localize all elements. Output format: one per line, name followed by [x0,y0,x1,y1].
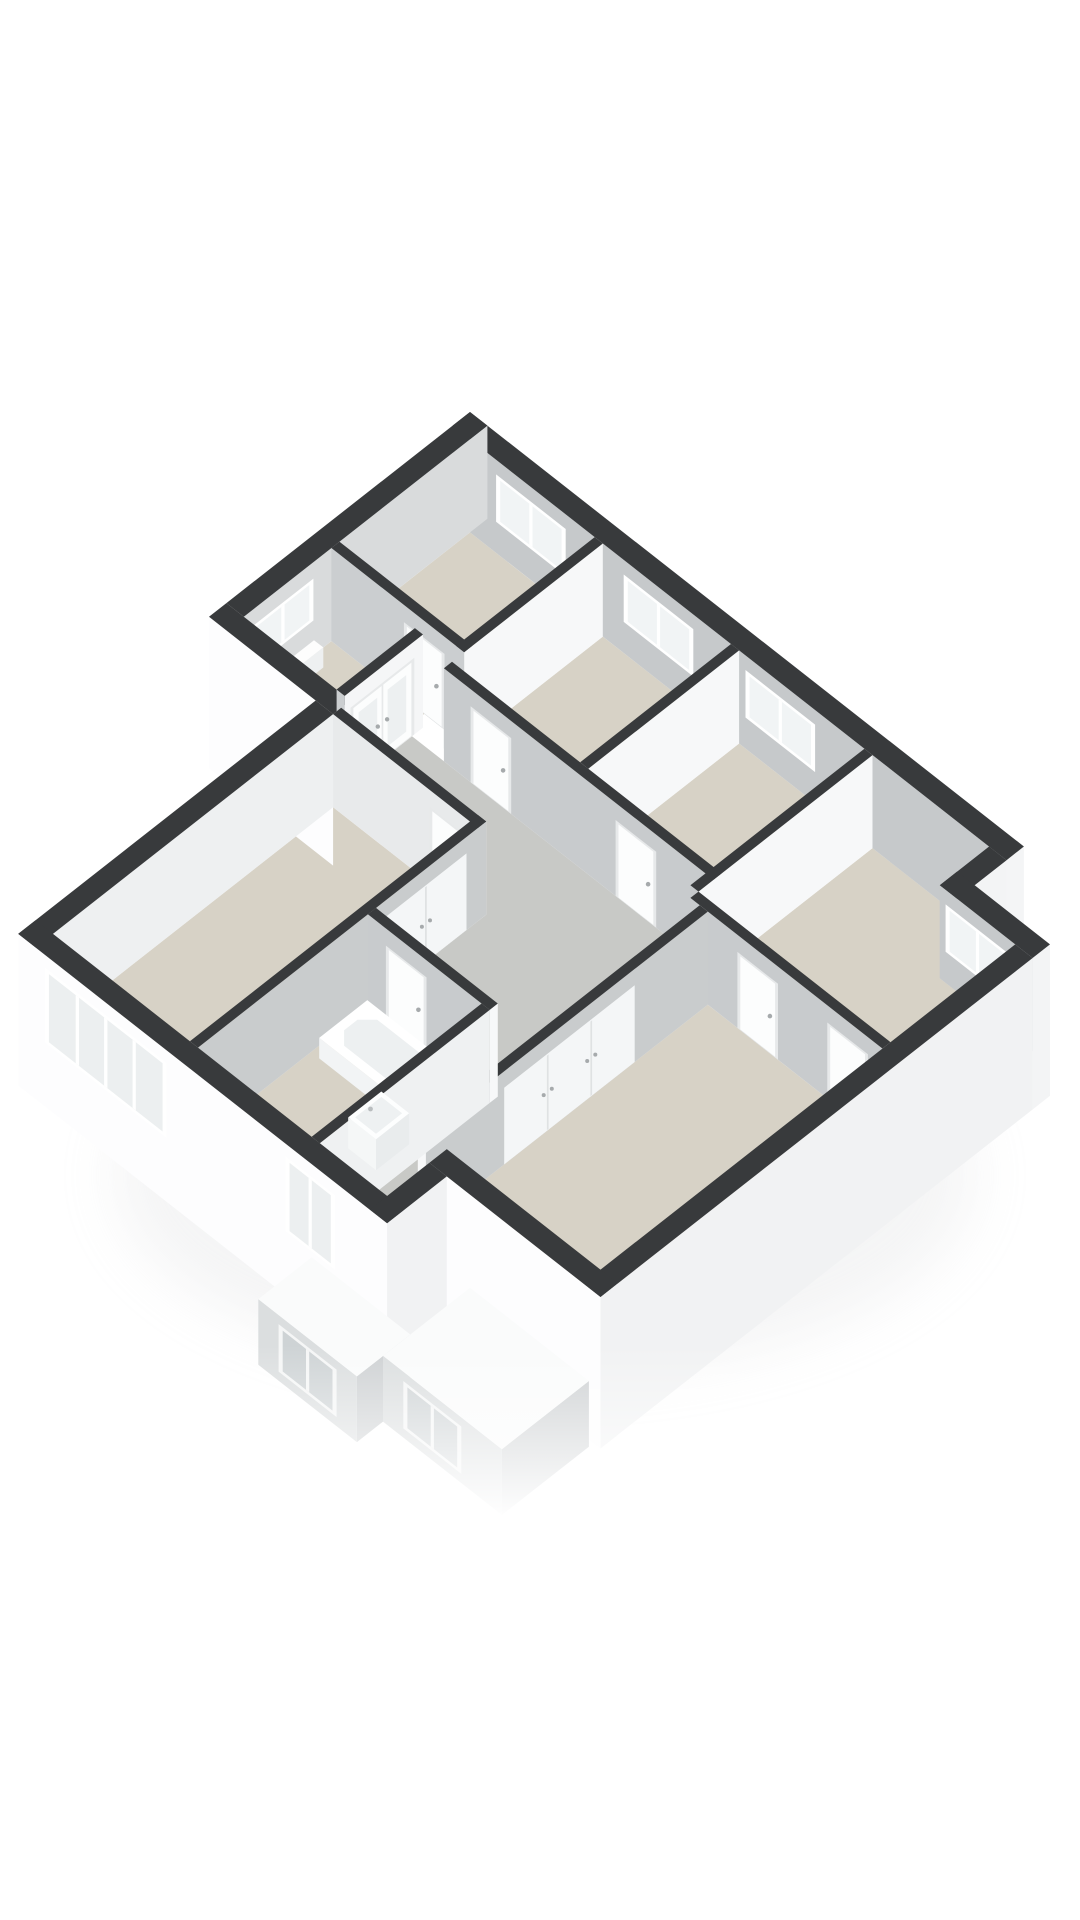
wall-face-se [1033,944,1050,1109]
ground-fade-solid [0,1520,1080,1920]
washbasin-tap [368,1107,373,1112]
wall-face-se [490,1004,498,1103]
closet-handle [420,925,424,929]
closet-handle [428,918,432,922]
window-mullion [529,504,532,547]
window-mullion [779,699,782,743]
closet-handle [542,1093,546,1097]
window-mullion [309,1178,312,1249]
window-mullion [76,995,79,1066]
door-handle [416,1008,421,1013]
scene-root [0,0,1080,1920]
door-handle [768,1014,773,1019]
floorplan-3d-render [0,0,1080,1920]
closet-seam [590,1020,592,1096]
ground-fade [0,1345,1080,1520]
window-mullion [281,605,284,643]
door-handle [501,768,506,773]
window-mullion [133,1040,136,1111]
door-handle [434,684,439,689]
window-mullion [976,931,979,974]
closet-handle [593,1053,597,1057]
closet-handle [585,1059,589,1063]
door-handle [385,717,389,721]
door-handle [376,724,380,728]
window-mullion [104,1017,107,1088]
door-handle [646,882,651,887]
closet-seam [547,1054,549,1130]
closet-handle [550,1087,554,1091]
floorplan-page [0,0,1080,1920]
window-mullion [657,604,660,647]
